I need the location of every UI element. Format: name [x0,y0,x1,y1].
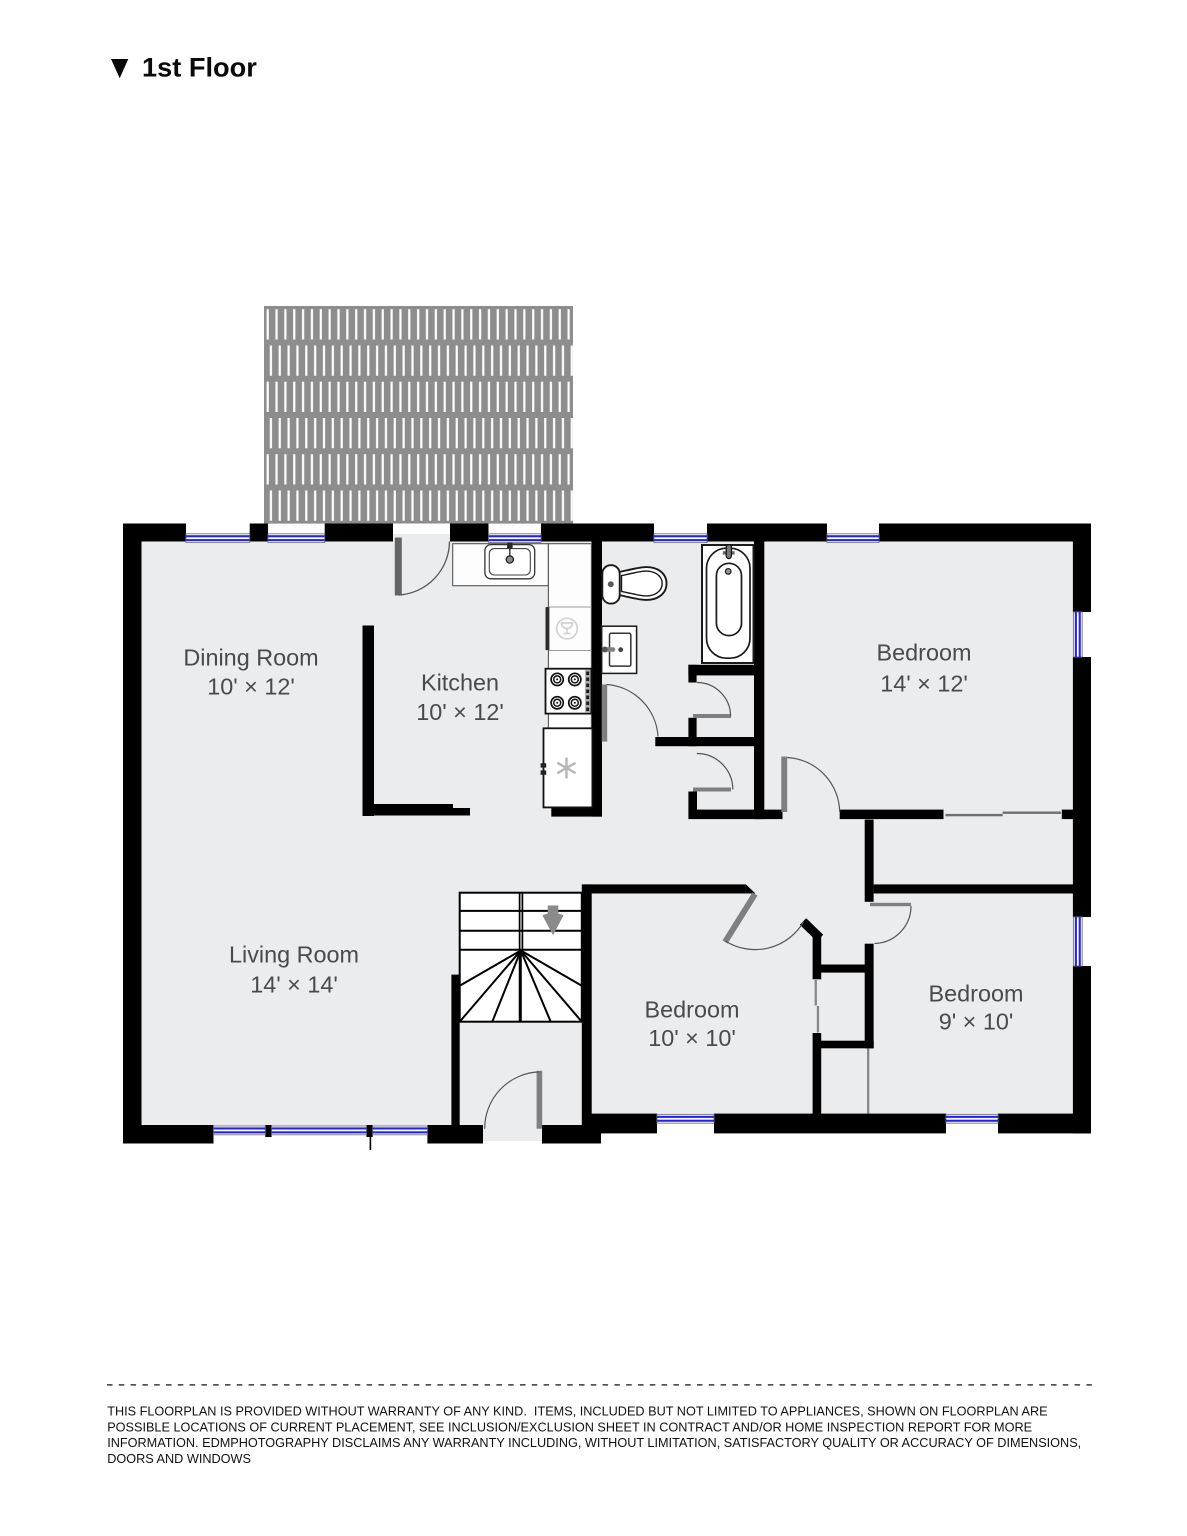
svg-text:10' × 12': 10' × 12' [416,699,504,725]
svg-text:Bedroom: Bedroom [645,997,740,1023]
svg-text:14' × 14': 14' × 14' [250,972,338,998]
svg-text:10' × 12': 10' × 12' [207,674,295,700]
svg-text:Living Room: Living Room [229,942,359,968]
svg-text:THIS FLOORPLAN IS PROVIDED WIT: THIS FLOORPLAN IS PROVIDED WITHOUT WARRA… [107,1405,1047,1419]
svg-text:DOORS AND WINDOWS: DOORS AND WINDOWS [107,1452,251,1466]
svg-text:10' × 10': 10' × 10' [648,1025,736,1051]
svg-text:Bedroom: Bedroom [877,640,972,666]
svg-text:Kitchen: Kitchen [421,670,499,696]
svg-text:1st Floor: 1st Floor [142,52,257,83]
svg-text:Bedroom: Bedroom [929,981,1024,1007]
svg-text:Dining Room: Dining Room [183,645,318,671]
svg-text:POSSIBLE LOCATIONS OF CURRENT: POSSIBLE LOCATIONS OF CURRENT PLACEMENT,… [107,1420,1032,1434]
svg-text:9' × 10': 9' × 10' [939,1009,1014,1035]
svg-text:INFORMATION. EDMPHOTOGRAPHY DI: INFORMATION. EDMPHOTOGRAPHY DISCLAIMS AN… [107,1436,1081,1450]
svg-text:14' × 12': 14' × 12' [880,671,968,697]
